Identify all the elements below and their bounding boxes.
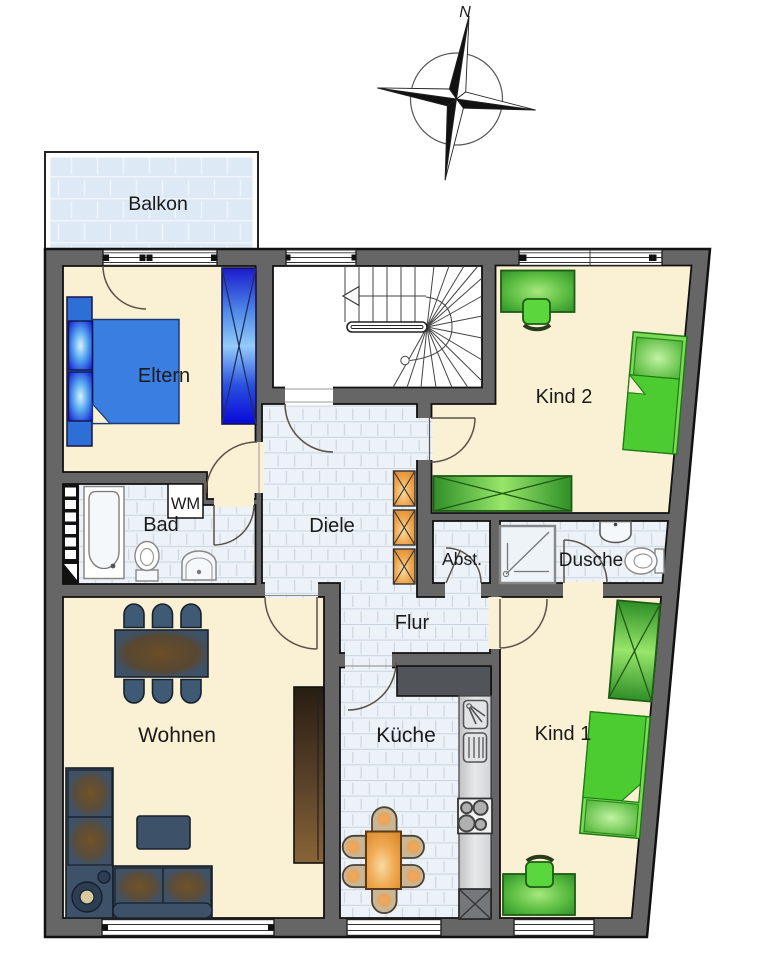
svg-text:Balkon: Balkon (128, 193, 188, 215)
svg-text:Kind 2: Kind 2 (536, 386, 593, 408)
svg-text:Dusche: Dusche (559, 550, 623, 571)
svg-text:Küche: Küche (376, 724, 436, 747)
svg-text:Kind 1: Kind 1 (535, 723, 592, 745)
svg-text:Wohnen: Wohnen (138, 724, 216, 747)
svg-text:Abst.: Abst. (442, 549, 482, 569)
svg-text:Bad: Bad (143, 514, 179, 536)
svg-text:N: N (459, 4, 471, 21)
svg-text:Diele: Diele (309, 515, 355, 537)
svg-text:WM: WM (171, 495, 200, 513)
svg-text:Eltern: Eltern (138, 365, 190, 387)
svg-text:Flur: Flur (395, 612, 430, 634)
